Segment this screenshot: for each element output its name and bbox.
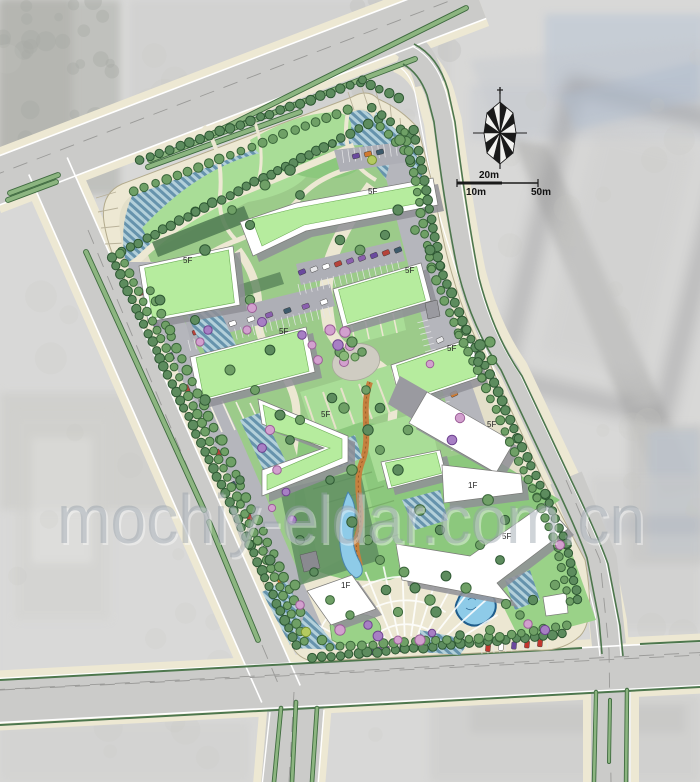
svg-text:20m: 20m (479, 170, 499, 181)
svg-text:5F: 5F (368, 187, 377, 196)
svg-text:50m: 50m (531, 187, 551, 198)
svg-text:mochiy-eldar.com.cn: mochiy-eldar.com.cn (57, 480, 645, 558)
svg-text:1F: 1F (341, 581, 350, 590)
svg-text:5F: 5F (279, 327, 288, 336)
svg-text:5F: 5F (183, 256, 192, 265)
svg-text:5F: 5F (487, 420, 496, 429)
svg-text:5F: 5F (447, 344, 456, 353)
svg-text:5F: 5F (321, 410, 330, 419)
svg-text:5F: 5F (405, 266, 414, 275)
svg-text:10m: 10m (466, 187, 486, 198)
